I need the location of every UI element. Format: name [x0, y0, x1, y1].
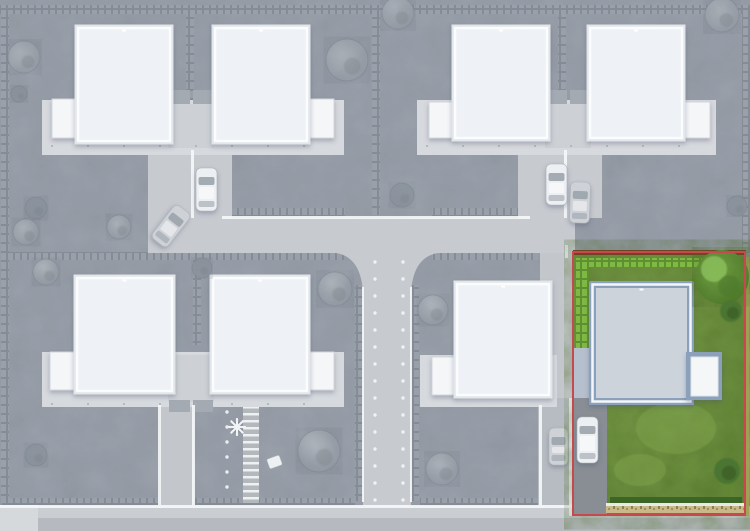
center-road: [363, 253, 411, 513]
terrace-post: [267, 403, 269, 405]
lawn-patch: [614, 454, 666, 486]
terrace-post: [498, 145, 500, 147]
entrance-porch: [169, 400, 190, 412]
tree-shadow: [332, 287, 346, 301]
path-light: [401, 498, 404, 501]
path-light: [401, 328, 404, 331]
tree-shadow: [34, 207, 43, 216]
hedge-row: [232, 208, 345, 216]
tree-shadow: [18, 93, 24, 99]
tree-shadow: [44, 271, 54, 281]
hedge-green: [576, 258, 702, 267]
path-light: [373, 498, 376, 501]
terrace-post: [462, 145, 464, 147]
roof-vent: [259, 30, 263, 32]
house-roof: [590, 28, 682, 138]
terrace-post: [159, 145, 161, 147]
entrance-court: [168, 104, 214, 148]
main-road: [148, 218, 575, 253]
hedge-row: [195, 498, 355, 506]
house: [75, 25, 174, 145]
road-marking: [191, 150, 194, 218]
house-roof: [215, 28, 307, 141]
car-rear-window: [580, 453, 596, 459]
tree-shadow: [396, 11, 409, 24]
path-light: [401, 481, 404, 484]
terrace-post: [123, 145, 125, 147]
path-light: [225, 470, 228, 473]
site-plan: [0, 0, 750, 531]
path-light: [401, 379, 404, 382]
car-roof: [552, 447, 565, 453]
car-rear-window: [549, 195, 565, 201]
path-light: [373, 379, 376, 382]
path-light: [373, 311, 376, 314]
path-light: [401, 396, 404, 399]
terrace-post: [51, 403, 53, 405]
lawn-patch: [636, 402, 716, 454]
path-light: [373, 413, 376, 416]
path-light: [401, 345, 404, 348]
path-light: [373, 481, 376, 484]
house: [212, 25, 311, 145]
tree-shadow: [117, 226, 127, 236]
terrace-post: [678, 145, 680, 147]
house: [454, 281, 553, 399]
parked-car: [546, 164, 567, 205]
car-roof: [199, 187, 214, 199]
highlighted-plot[interactable]: [573, 250, 749, 516]
hedge-row: [2, 498, 159, 506]
path-light: [225, 455, 228, 458]
hedge-row: [420, 498, 538, 506]
path-light: [373, 277, 376, 280]
path-light: [401, 362, 404, 365]
car-windshield: [549, 173, 565, 181]
roof-vent: [640, 289, 644, 291]
tree-shadow: [431, 309, 443, 321]
path-light: [373, 430, 376, 433]
hedge-row: [742, 5, 750, 253]
car-roof: [573, 201, 587, 211]
terrace-post: [534, 145, 536, 147]
tree-shadow: [22, 55, 35, 68]
hedge-row: [432, 208, 520, 216]
path-light: [401, 447, 404, 450]
path-light: [401, 464, 404, 467]
garage-roof: [50, 352, 76, 390]
car-roof: [549, 183, 564, 193]
gravel-strip: [606, 506, 745, 513]
parked-car: [196, 168, 217, 211]
house: [452, 25, 551, 142]
path-light: [373, 260, 376, 263]
car-roof: [580, 436, 595, 451]
terrace-post: [87, 403, 89, 405]
roof-vent: [499, 30, 503, 32]
entrance-court: [545, 104, 591, 148]
path-light: [225, 485, 228, 488]
terrace-post: [570, 145, 572, 147]
hedge-row: [186, 5, 194, 101]
car-windshield: [573, 191, 588, 200]
house-roof: [213, 278, 307, 391]
house: [210, 275, 311, 395]
courtyard-top-left: [148, 148, 232, 218]
selected-garage-roof: [691, 357, 718, 396]
hedge-row: [355, 285, 363, 501]
path-light: [401, 413, 404, 416]
garage-roof: [308, 352, 334, 390]
palm-tree: [229, 419, 245, 435]
stepping-stone-path: [243, 407, 259, 503]
road-marking: [222, 216, 530, 219]
path-light: [401, 277, 404, 280]
driveway-bottom-left: [160, 405, 194, 506]
path-light: [401, 430, 404, 433]
garage-roof: [684, 102, 710, 138]
roof-vent: [634, 30, 638, 32]
hedge-row: [558, 5, 566, 96]
house-roof: [77, 278, 172, 391]
tree-shadow: [344, 58, 361, 75]
site-plan-canvas: [0, 0, 750, 531]
road-marking: [362, 287, 364, 502]
roof-vent: [258, 280, 262, 282]
terrace-post: [606, 145, 608, 147]
tree-shadow: [400, 194, 410, 204]
garage-roof: [52, 99, 78, 138]
tree-shadow: [736, 205, 744, 213]
road-marking: [539, 405, 542, 505]
hedge-row: [432, 252, 538, 260]
path-light: [373, 345, 376, 348]
parked-car-selected: [577, 417, 598, 463]
hedge-row: [372, 5, 380, 215]
house-roof: [455, 28, 547, 138]
house-roof: [78, 28, 170, 141]
car-rear-window: [199, 201, 215, 207]
tree-shadow: [316, 449, 333, 466]
bush-green-core: [722, 466, 736, 480]
terrace-post: [303, 145, 305, 147]
terrace-post: [642, 145, 644, 147]
path-light: [373, 464, 376, 467]
terrace-post: [195, 145, 197, 147]
hedge-row: [2, 252, 344, 260]
path-light: [401, 294, 404, 297]
path-light: [373, 447, 376, 450]
path-light: [373, 362, 376, 365]
parked-car: [549, 428, 568, 465]
terrace-post: [51, 145, 53, 147]
road-marking: [569, 398, 572, 516]
path-light: [401, 260, 404, 263]
terrace-post: [426, 145, 428, 147]
driveway-apron: [0, 505, 38, 531]
car-windshield: [552, 437, 566, 445]
house-roof: [457, 284, 549, 395]
hedge-green: [576, 258, 589, 352]
garage-roof: [432, 357, 457, 395]
bush-green-core: [727, 307, 739, 319]
garage-roof: [308, 99, 334, 138]
tree-shadow: [24, 231, 34, 241]
road-marking: [0, 505, 574, 508]
tree-shadow: [719, 13, 733, 27]
path-light: [225, 410, 228, 413]
house: [74, 275, 176, 395]
tree-shadow: [440, 467, 453, 480]
sidewalk-line: [606, 503, 745, 506]
terrace-post: [231, 403, 233, 405]
bottom-street: [0, 518, 750, 531]
tree-shadow: [34, 454, 43, 463]
terrace-post: [195, 403, 197, 405]
path-light: [373, 396, 376, 399]
hedge-row: [411, 285, 419, 501]
tree-green-shade: [718, 275, 740, 297]
terrace-post: [123, 403, 125, 405]
path-light: [373, 294, 376, 297]
road-marking: [158, 405, 161, 505]
roof-vent: [501, 286, 505, 288]
path-light: [373, 328, 376, 331]
roof-vent: [122, 30, 126, 32]
car-windshield: [199, 177, 215, 185]
parked-car: [569, 182, 590, 224]
house: [587, 25, 686, 142]
terrace-post: [231, 145, 233, 147]
terrace-post: [303, 403, 305, 405]
selected-house-roof: [596, 288, 687, 398]
entrance-porch: [193, 90, 213, 104]
road-marking: [565, 245, 568, 258]
car-rear-window: [552, 455, 566, 461]
road-marking: [192, 405, 195, 505]
road-marking: [410, 287, 412, 502]
roof-vent: [123, 280, 127, 282]
car-rear-window: [572, 213, 587, 220]
terrace-post: [267, 145, 269, 147]
terrace-post: [159, 403, 161, 405]
entrance-porch: [193, 400, 213, 412]
garage-roof: [429, 102, 455, 138]
car-windshield: [580, 426, 596, 434]
path-light: [225, 440, 228, 443]
path-light: [401, 311, 404, 314]
terrace-post: [87, 145, 89, 147]
tree-shadow: [201, 267, 209, 275]
